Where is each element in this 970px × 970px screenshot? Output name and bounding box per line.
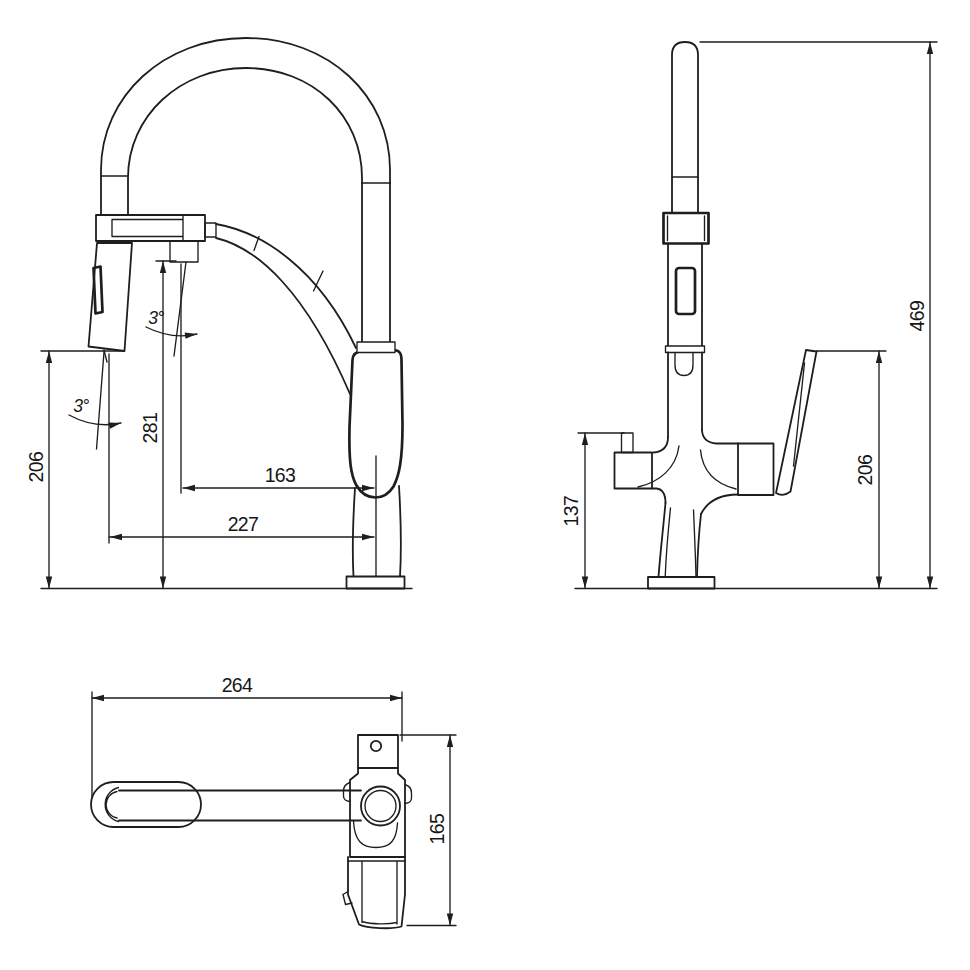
side-base-flange xyxy=(648,577,715,589)
front-base-flange xyxy=(347,577,405,589)
dim-front-spray-angle: 3° xyxy=(73,396,89,416)
faucet-technical-drawing: 206 281 163 227 3° 3° xyxy=(0,0,970,970)
drawing-sheet: 206 281 163 227 3° 3° xyxy=(0,0,970,970)
dim-top-overall-depth: 165 xyxy=(426,813,448,844)
side-collar xyxy=(664,213,709,244)
dim-front-holder-height: 281 xyxy=(139,413,161,444)
sheet-background xyxy=(0,0,970,970)
dim-front-spray-height: 206 xyxy=(25,452,47,483)
dim-side-handle-height: 206 xyxy=(854,455,876,486)
dim-front-holder-angle: 3° xyxy=(148,308,164,328)
dim-side-overall-height: 469 xyxy=(906,301,928,332)
top-swivel-joint xyxy=(361,787,400,826)
dim-top-overall-length: 264 xyxy=(222,674,253,696)
dim-side-spout-height: 137 xyxy=(560,496,582,527)
dim-front-reach-outer: 227 xyxy=(228,513,259,535)
dim-front-reach-inner: 163 xyxy=(265,464,296,486)
